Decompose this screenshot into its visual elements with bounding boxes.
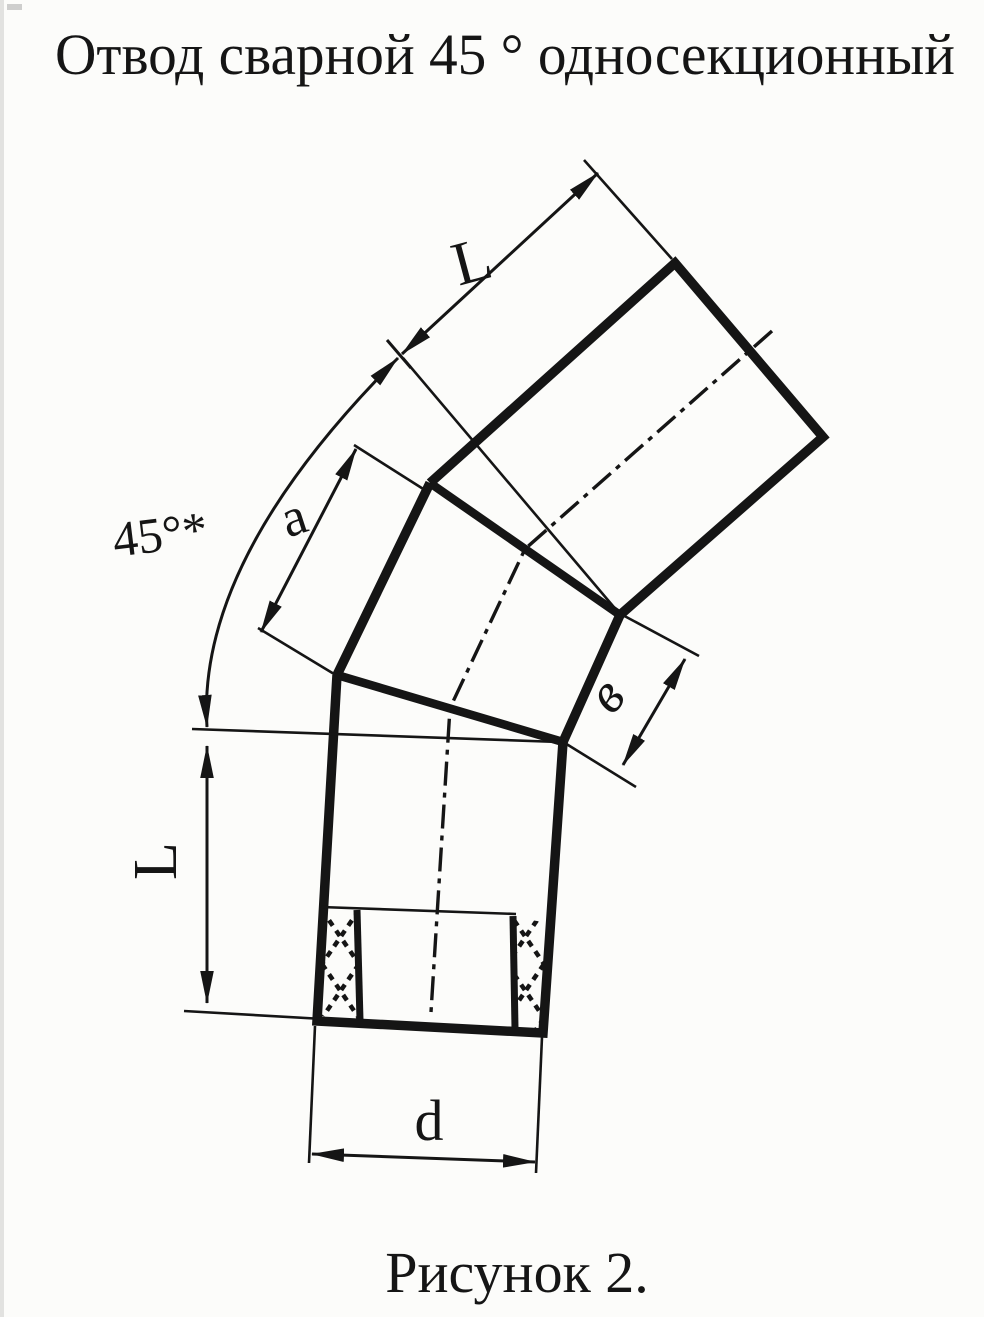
pipe-outline	[317, 263, 823, 1033]
dim-line-d	[312, 1154, 535, 1162]
ext-horizontal-plane	[192, 729, 559, 742]
right-sleeve-hatch	[513, 917, 549, 1029]
ext-a-bottom	[258, 628, 339, 677]
scan-artifacts	[0, 0, 22, 1317]
scanned-drawing-page: Отвод сварной 45 ° односекционный L	[0, 0, 984, 1317]
drawing-title: Отвод сварной 45 ° односекционный	[55, 22, 955, 87]
dim-label-angle: 45°*	[109, 501, 210, 568]
dim-label-L-lower: L	[122, 842, 190, 880]
left-sleeve-hatch	[319, 910, 360, 1019]
left-sleeve-inner-edge	[357, 910, 360, 1020]
right-sleeve-inner-edge	[513, 916, 515, 1028]
elbow-drawing: Отвод сварной 45 ° односекционный L	[0, 0, 984, 1317]
ext-v-top	[617, 612, 699, 656]
dim-label-a: a	[273, 485, 314, 549]
dim-section-outer: a	[258, 445, 428, 677]
figure-caption: Рисунок 2.	[385, 1240, 649, 1305]
dim-length-lower: L	[122, 746, 323, 1019]
dim-label-d: d	[415, 1088, 444, 1153]
ext-a-top	[354, 445, 428, 492]
scan-edge-shadow	[0, 0, 4, 1317]
dim-line-L-upper	[402, 173, 598, 354]
ext-bottom-left	[184, 1011, 323, 1019]
ext-d-right	[536, 1037, 542, 1173]
dim-diameter: d	[309, 1026, 542, 1173]
scan-speck	[7, 4, 22, 10]
upper-pipe-outline	[430, 263, 823, 615]
dim-label-L-upper: L	[445, 224, 499, 299]
ext-d-left	[309, 1026, 315, 1163]
